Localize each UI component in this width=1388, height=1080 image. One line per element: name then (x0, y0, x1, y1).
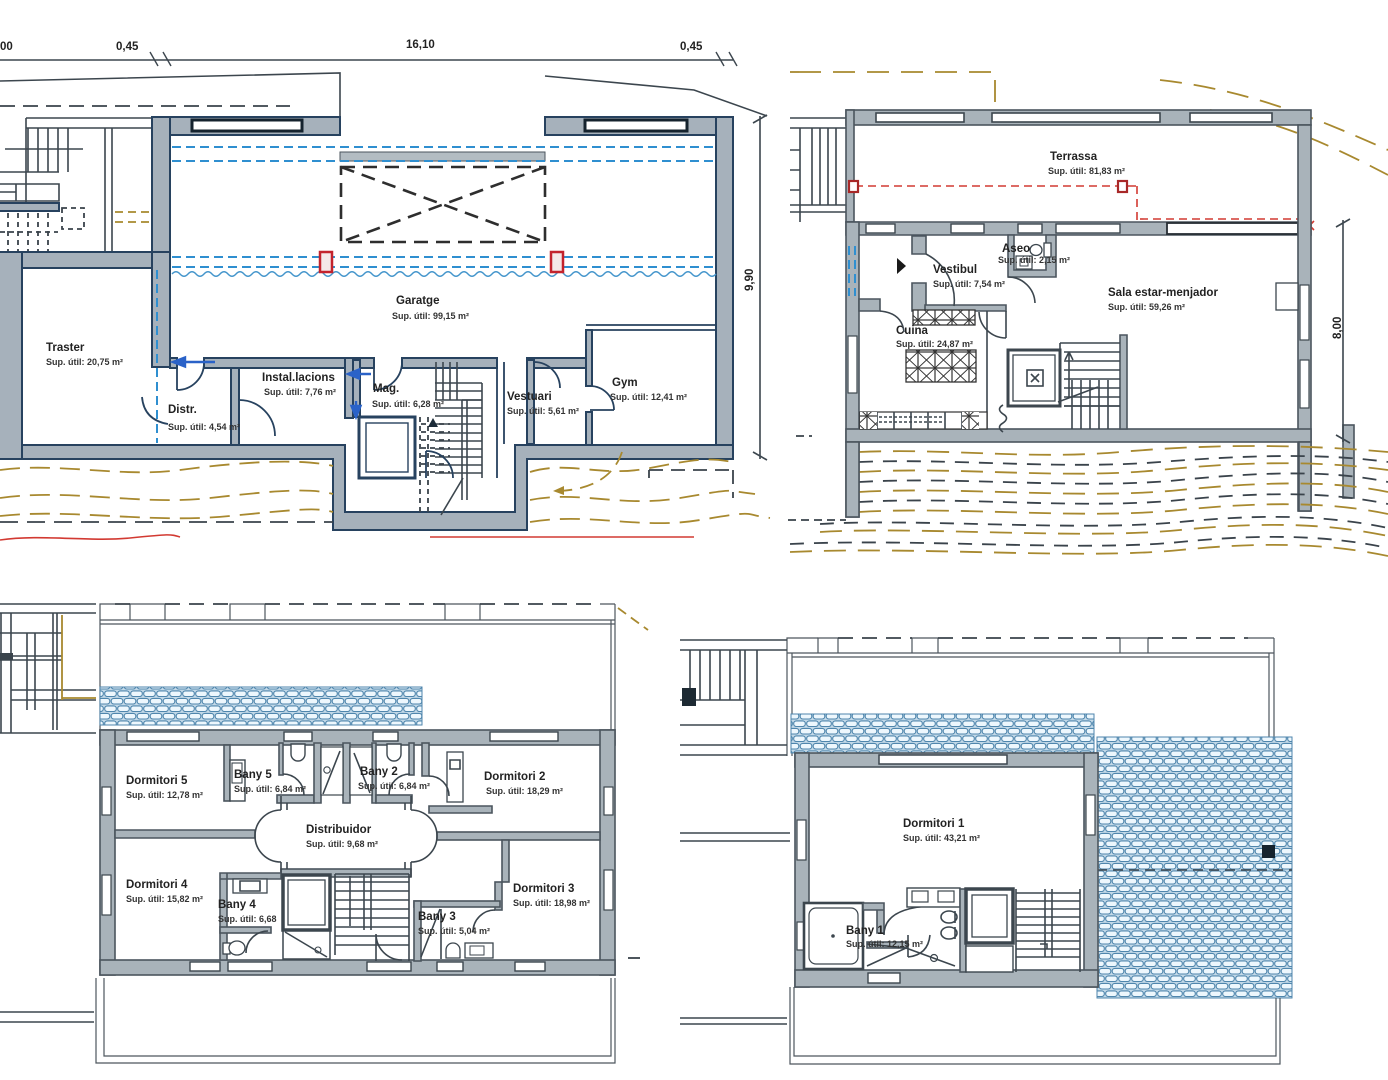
svg-text:Distribuidor: Distribuidor (306, 824, 372, 836)
svg-text:9,90: 9,90 (744, 269, 756, 291)
svg-text:Sup. útil: 6,84 m²: Sup. útil: 6,84 m² (358, 781, 430, 791)
svg-text:Sup. útil: 12,78 m²: Sup. útil: 12,78 m² (126, 790, 203, 800)
svg-text:Bany 2: Bany 2 (360, 766, 398, 778)
svg-text:Sup. útil: 18,98 m²: Sup. útil: 18,98 m² (513, 898, 590, 908)
svg-text:8,00: 8,00 (1332, 317, 1344, 339)
svg-text:Sala estar-menjador: Sala estar-menjador (1108, 287, 1218, 299)
svg-text:00: 00 (0, 41, 13, 53)
svg-text:Vestibul: Vestibul (933, 264, 977, 276)
svg-text:Mag.: Mag. (373, 383, 399, 395)
svg-text:Sup. útil: 20,75 m²: Sup. útil: 20,75 m² (46, 357, 123, 367)
svg-text:Gym: Gym (612, 377, 638, 389)
svg-text:Instal.lacions: Instal.lacions (262, 372, 335, 384)
svg-text:Sup. útil: 99,15 m²: Sup. útil: 99,15 m² (392, 311, 469, 321)
svg-text:Cuina: Cuina (896, 325, 929, 337)
svg-text:Sup. útil: 2,15 m²: Sup. útil: 2,15 m² (998, 255, 1070, 265)
svg-text:Dormitori 5: Dormitori 5 (126, 775, 188, 787)
svg-text:Vestuari: Vestuari (507, 391, 552, 403)
svg-text:Sup. útil: 18,29 m²: Sup. útil: 18,29 m² (486, 786, 563, 796)
svg-text:Bany 3: Bany 3 (418, 911, 456, 923)
svg-text:Traster: Traster (46, 342, 85, 354)
svg-text:Sup. útil: 43,21 m²: Sup. útil: 43,21 m² (903, 833, 980, 843)
svg-text:Terrassa: Terrassa (1050, 151, 1098, 163)
svg-text:Bany 1: Bany 1 (846, 925, 884, 937)
svg-text:Sup. útil: 59,26 m²: Sup. útil: 59,26 m² (1108, 302, 1185, 312)
svg-text:16,10: 16,10 (406, 39, 435, 51)
svg-text:Dormitori 2: Dormitori 2 (484, 771, 545, 783)
svg-text:Dormitori 3: Dormitori 3 (513, 883, 574, 895)
svg-text:Bany 4: Bany 4 (218, 899, 256, 911)
svg-text:Sup. útil: 6,84 m²: Sup. útil: 6,84 m² (234, 784, 306, 794)
svg-text:Sup. útil: 7,54 m²: Sup. útil: 7,54 m² (933, 279, 1005, 289)
svg-text:0,45: 0,45 (680, 41, 703, 53)
svg-text:Sup. útil: 6,68: Sup. útil: 6,68 (218, 914, 277, 924)
svg-text:Sup. útil: 15,82 m²: Sup. útil: 15,82 m² (126, 894, 203, 904)
svg-text:Sup. útil: 24,87 m²: Sup. útil: 24,87 m² (896, 339, 973, 349)
svg-text:Sup. útil: 7,76 m²: Sup. útil: 7,76 m² (264, 387, 336, 397)
svg-text:Dormitori 4: Dormitori 4 (126, 879, 188, 891)
svg-text:Sup. útil: 9,68 m²: Sup. útil: 9,68 m² (306, 839, 378, 849)
svg-text:Sup. útil: 12,41 m²: Sup. útil: 12,41 m² (610, 392, 687, 402)
svg-text:0,45: 0,45 (116, 41, 139, 53)
svg-text:Garatge: Garatge (396, 295, 439, 307)
svg-text:Distr.: Distr. (168, 404, 197, 416)
svg-text:Bany 5: Bany 5 (234, 769, 272, 781)
svg-text:Aseo: Aseo (1002, 243, 1030, 255)
svg-text:Sup. útil: 4,54 m²: Sup. útil: 4,54 m² (168, 422, 240, 432)
svg-text:Sup. útil: 6,28 m²: Sup. útil: 6,28 m² (372, 399, 444, 409)
svg-text:Sup. útil: 5,61 m²: Sup. útil: 5,61 m² (507, 406, 579, 416)
svg-text:Sup. útil: 81,83 m²: Sup. útil: 81,83 m² (1048, 166, 1125, 176)
svg-text:Sup. útil: 5,04 m²: Sup. útil: 5,04 m² (418, 926, 490, 936)
svg-text:Dormitori 1: Dormitori 1 (903, 818, 965, 830)
svg-text:Sup. útil: 12,15 m²: Sup. útil: 12,15 m² (846, 939, 923, 949)
